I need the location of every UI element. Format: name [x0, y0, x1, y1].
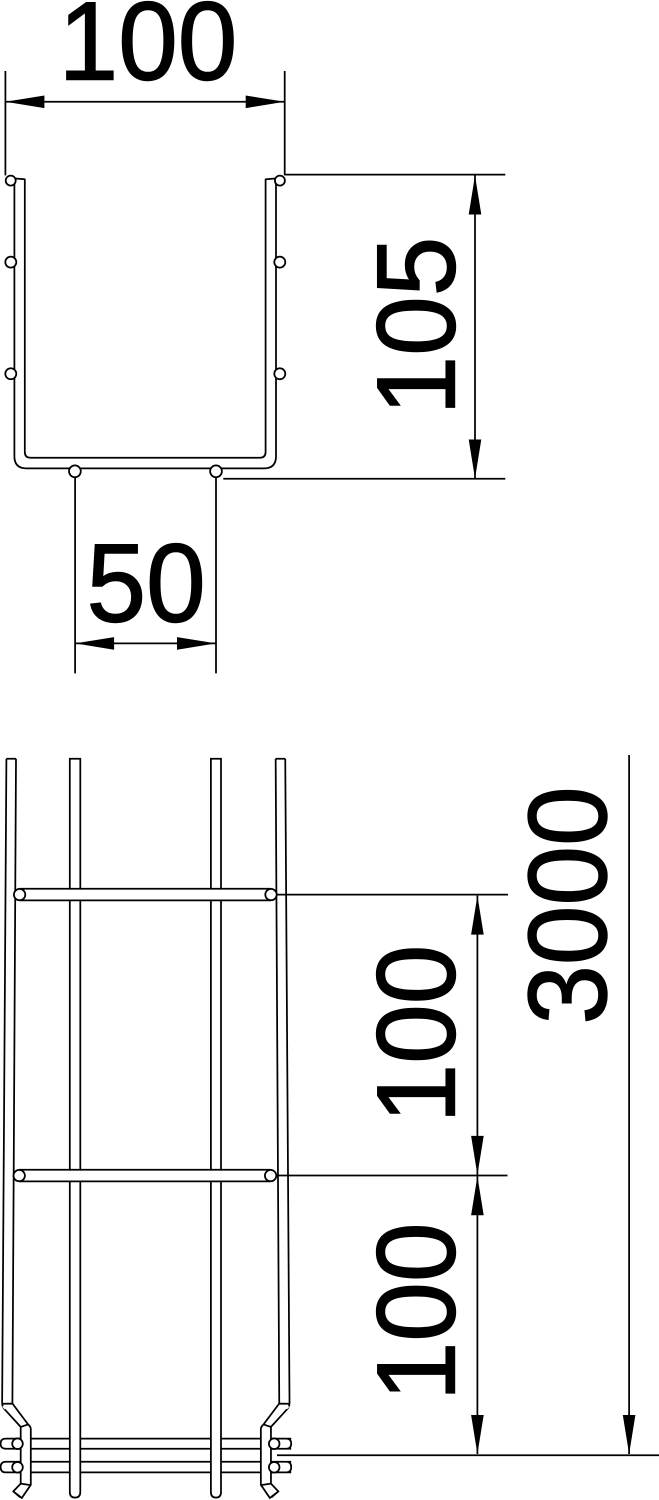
svg-text:100: 100	[59, 0, 238, 104]
svg-text:50: 50	[87, 522, 206, 646]
svg-text:105: 105	[355, 237, 479, 416]
svg-text:100: 100	[355, 945, 479, 1124]
svg-text:3000: 3000	[506, 786, 630, 1024]
svg-text:100: 100	[355, 1222, 479, 1401]
